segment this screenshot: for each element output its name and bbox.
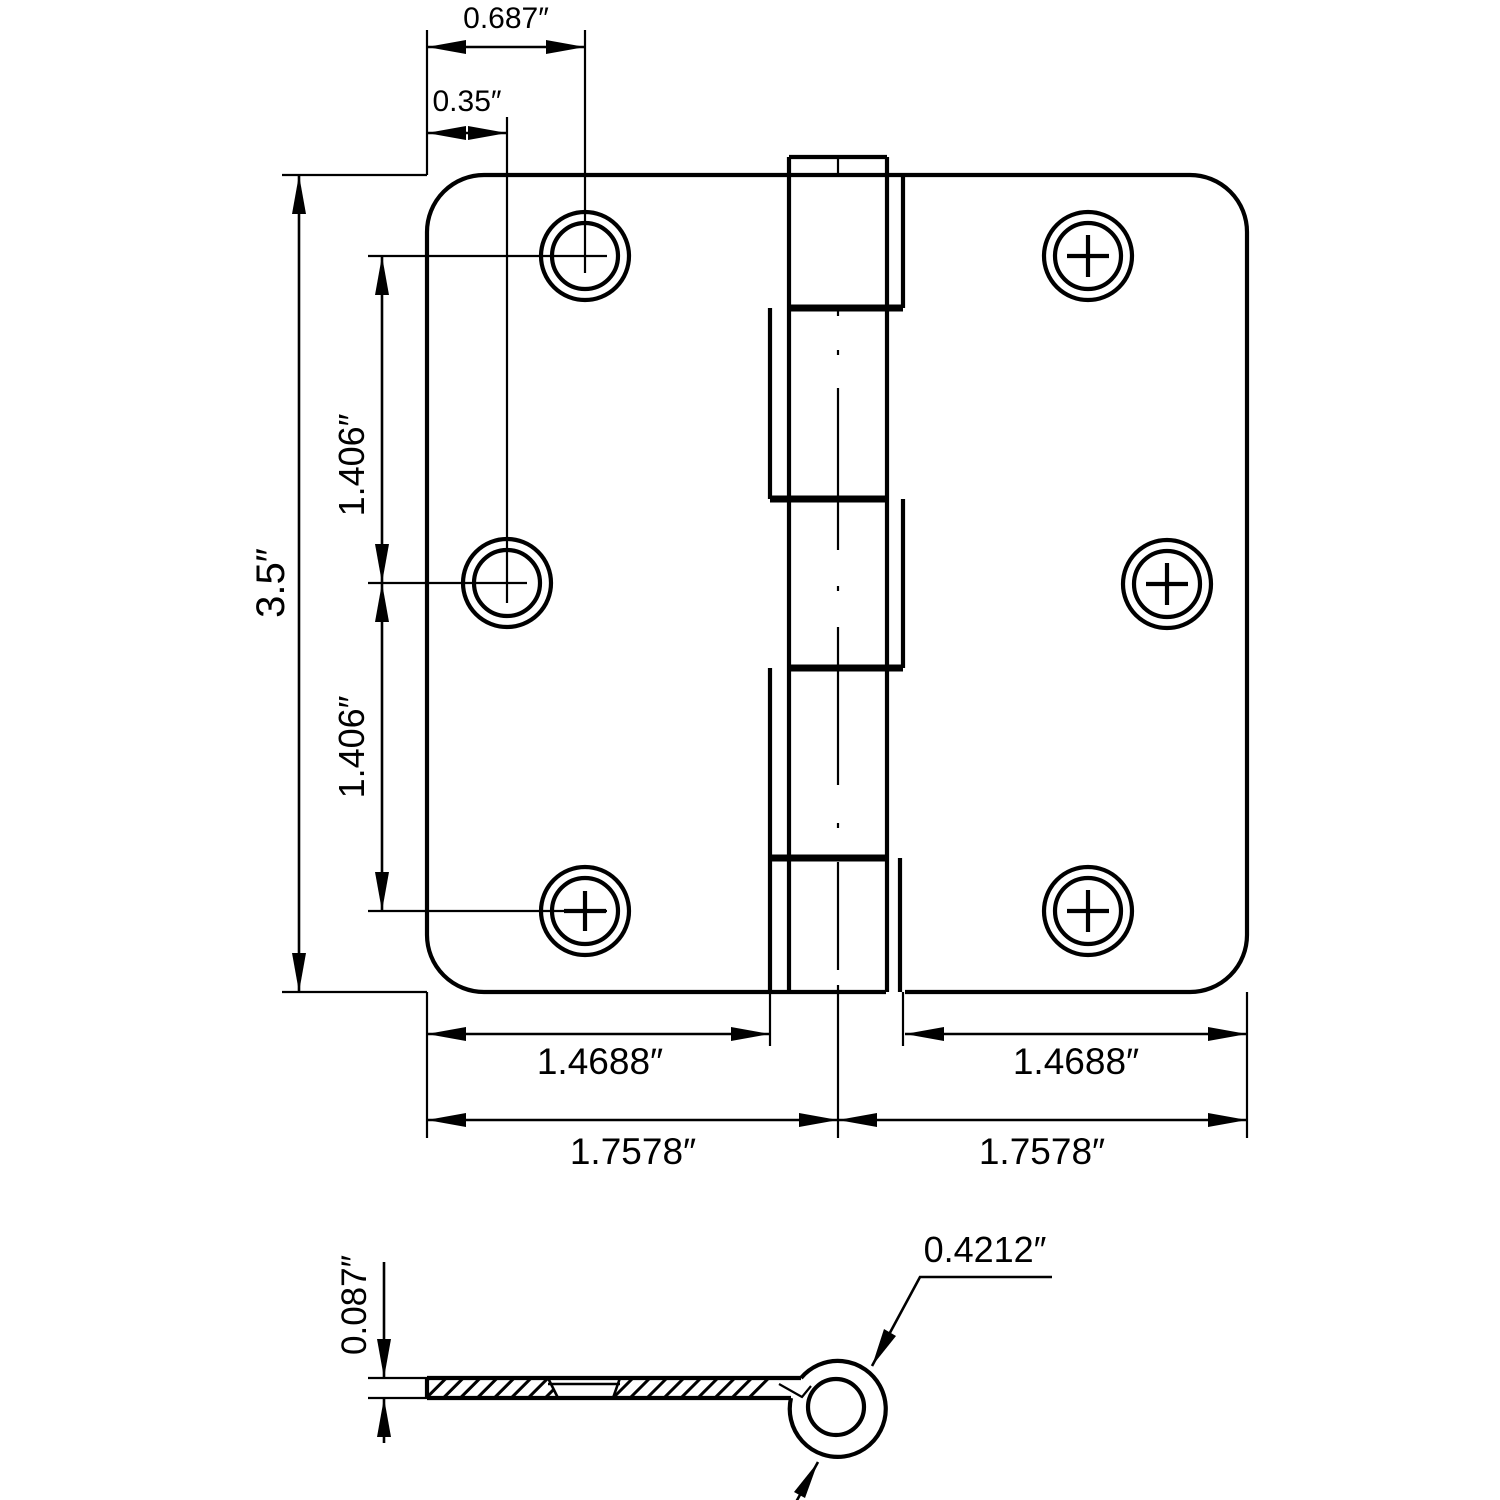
dim-overall-height: 3.5″ [249,175,306,992]
arrowhead-icon [1208,1027,1247,1041]
arrowhead-icon [794,1462,818,1498]
corner-arc-bottom-left [427,935,484,992]
arrowhead-icon [872,1329,896,1366]
curl-slit [779,1384,811,1397]
knuckle-curl-section [779,1361,886,1457]
arrowhead-icon [799,1113,838,1127]
dim-leaf-width-right: 1.4688″ [905,1027,1247,1082]
dim-half-width-right: 1.7578″ [838,1113,1247,1172]
screw-hole-mid-right [1123,540,1211,628]
dim-label: 1.406″ [331,413,372,516]
corner-arc-top-right [1190,175,1247,232]
screw-hole-bottom-right [1044,867,1132,955]
arrowhead-icon [546,40,585,54]
screw-hole-top-right [1044,212,1132,300]
arrowhead-icon [905,1027,944,1041]
curl-outer-arc [790,1361,886,1457]
bottom-leader [790,1462,818,1500]
drawing-sheet: 0.687″ 0.35″ 3.5″ 1.406″ 1.406″ [0,0,1500,1500]
hinge-technical-drawing: 0.687″ 0.35″ 3.5″ 1.406″ 1.406″ [0,0,1500,1500]
dim-half-width-left: 1.7578″ [427,1113,838,1172]
arrowhead-icon [427,126,466,140]
corner-arc-top-left [427,175,484,232]
dim-hole-spacing-upper: 1.406″ [331,256,389,583]
corner-arc-bottom-right [1190,935,1247,992]
arrowhead-icon [1208,1113,1247,1127]
leader-line [872,1277,1052,1366]
section-extension-lines [368,1378,427,1398]
dim-label: 1.7578″ [979,1131,1105,1172]
dim-leaf-thickness: 0.087″ [335,1255,391,1443]
arrowhead-icon [377,1398,391,1437]
arrowhead-icon [375,256,389,295]
section-hatch-left [427,1378,558,1398]
dim-label: 1.7578″ [570,1131,696,1172]
dim-label: 0.687″ [463,2,549,35]
hinge-front-view: 0.687″ 0.35″ 3.5″ 1.406″ 1.406″ [249,2,1247,1172]
pin-bore-circle [808,1379,864,1435]
dim-hole1-offset: 0.687″ [427,2,585,54]
dim-leaf-width-left: 1.4688″ [427,1027,770,1082]
dim-label: 1.4688″ [1013,1041,1139,1082]
hinge-barrel [770,157,903,992]
arrowhead-icon [468,126,507,140]
dim-label: 0.087″ [335,1255,374,1355]
dim-label: 1.4688″ [537,1041,663,1082]
extension-lines [282,30,1247,1138]
arrowhead-icon [427,1113,466,1127]
arrowhead-icon [375,872,389,911]
dim-label: 0.4212″ [924,1229,1047,1270]
dim-label: 3.5″ [249,548,293,618]
arrowhead-icon [427,40,466,54]
arrowhead-icon [375,583,389,622]
arrowhead-icon [377,1339,391,1378]
countersunk-hole-section [548,1378,620,1398]
arrowhead-icon [731,1027,770,1041]
arrowhead-icon [292,175,306,214]
section-hatch-right [613,1378,772,1398]
arrowhead-icon [292,953,306,992]
dim-label: 0.35″ [432,85,501,118]
arrowhead-icon [375,544,389,583]
dim-label: 1.406″ [331,695,372,798]
arrowhead-icon [427,1027,466,1041]
dim-hole2-offset: 0.35″ [427,85,507,140]
arrowhead-icon [838,1113,877,1127]
dim-knuckle-diameter: 0.4212″ [872,1229,1052,1366]
dim-hole-spacing-lower: 1.406″ [331,583,389,911]
hinge-section-view: 0.087″ 0.4212″ [335,1229,1052,1500]
